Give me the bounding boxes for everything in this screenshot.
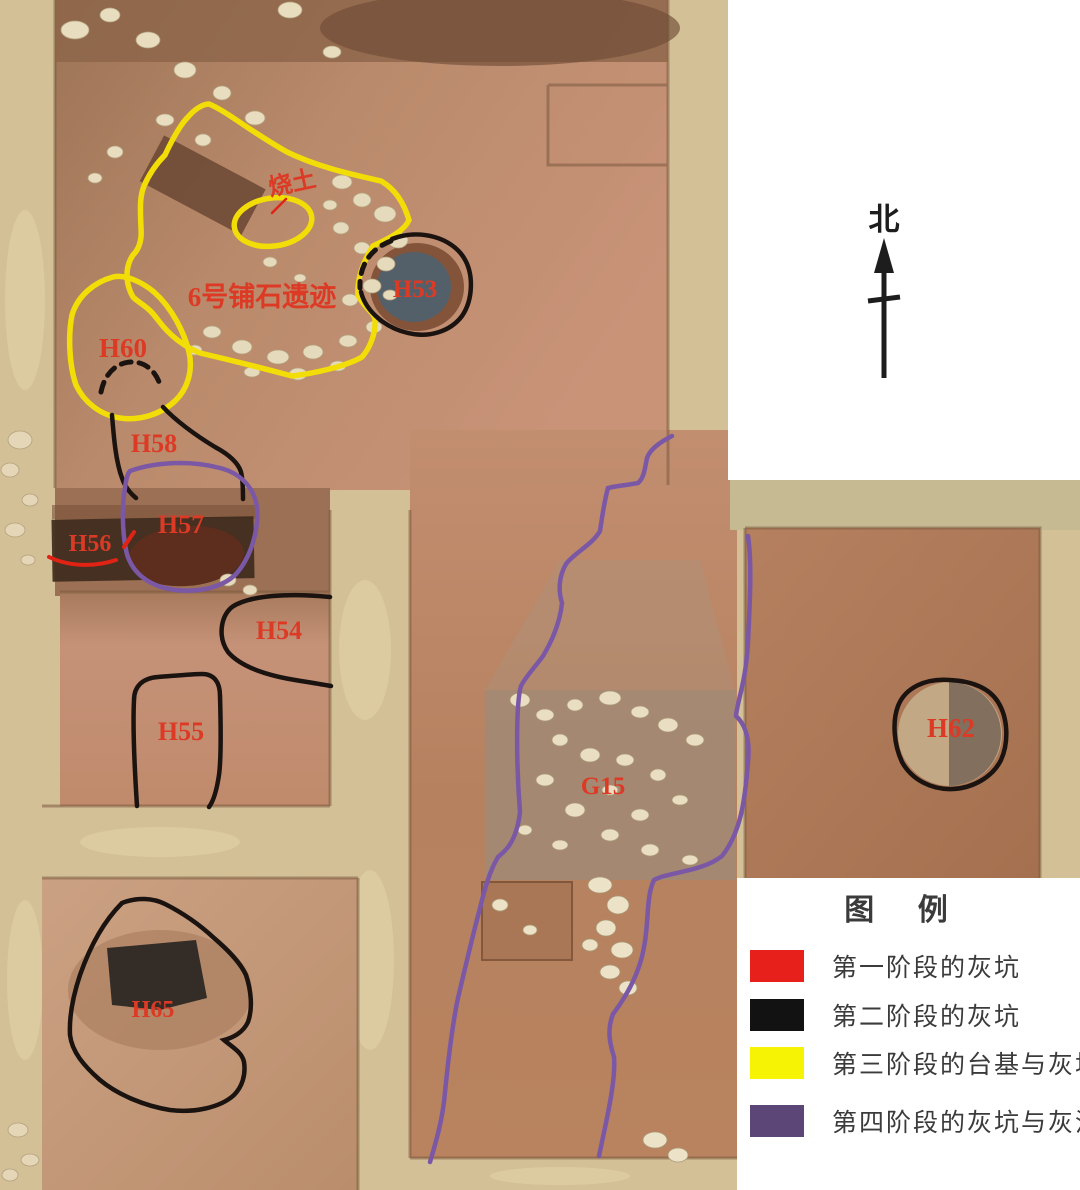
legend-label-stage2: 第二阶段的灰坑 bbox=[832, 1003, 1021, 1031]
excavation-plan-figure: 烧土 6号铺石遗迹 H53 H60 H58 H57 H56 H54 H55 H6… bbox=[0, 0, 1080, 1190]
legend-label-stage4: 第四阶段的灰坑与灰沟 bbox=[832, 1109, 1080, 1137]
legend-item-stage4: 第四阶段的灰坑与灰沟 bbox=[750, 1105, 1080, 1137]
trench-h62 bbox=[745, 528, 1040, 878]
legend-swatch-stage3 bbox=[750, 1047, 804, 1079]
legend-item-stage1: 第一阶段的灰坑 bbox=[750, 950, 1021, 982]
white-cutout-northeast bbox=[728, 0, 1080, 480]
label-h54: H54 bbox=[256, 616, 302, 645]
site-photo-canvas: 烧土 6号铺石遗迹 H53 H60 H58 H57 H56 H54 H55 H6… bbox=[0, 0, 1080, 1190]
legend-label-stage1: 第一阶段的灰坑 bbox=[832, 954, 1021, 982]
north-label: 北 bbox=[869, 202, 900, 237]
legend-swatch-stage2 bbox=[750, 999, 804, 1031]
baulk-band-east bbox=[730, 478, 1080, 530]
legend-item-stage2: 第二阶段的灰坑 bbox=[750, 999, 1021, 1031]
label-h55: H55 bbox=[158, 717, 204, 746]
label-h62: H62 bbox=[927, 713, 975, 743]
label-h56: H56 bbox=[69, 531, 112, 557]
legend-item-stage3: 第三阶段的台基与灰坑 bbox=[750, 1047, 1080, 1079]
square-pit bbox=[482, 882, 572, 960]
label-g15: G15 bbox=[581, 773, 625, 800]
label-platform-6: 6号铺石遗迹 bbox=[188, 282, 337, 312]
label-h65: H65 bbox=[132, 997, 175, 1023]
legend-swatch-stage4 bbox=[750, 1105, 804, 1137]
legend-swatch-stage1 bbox=[750, 950, 804, 982]
label-h60: H60 bbox=[99, 333, 147, 363]
legend-label-stage3: 第三阶段的台基与灰坑 bbox=[832, 1051, 1080, 1079]
label-h58: H58 bbox=[131, 429, 177, 458]
label-h53: H53 bbox=[393, 276, 437, 303]
label-h57: H57 bbox=[158, 510, 204, 539]
legend-title: 图 例 bbox=[844, 894, 966, 927]
